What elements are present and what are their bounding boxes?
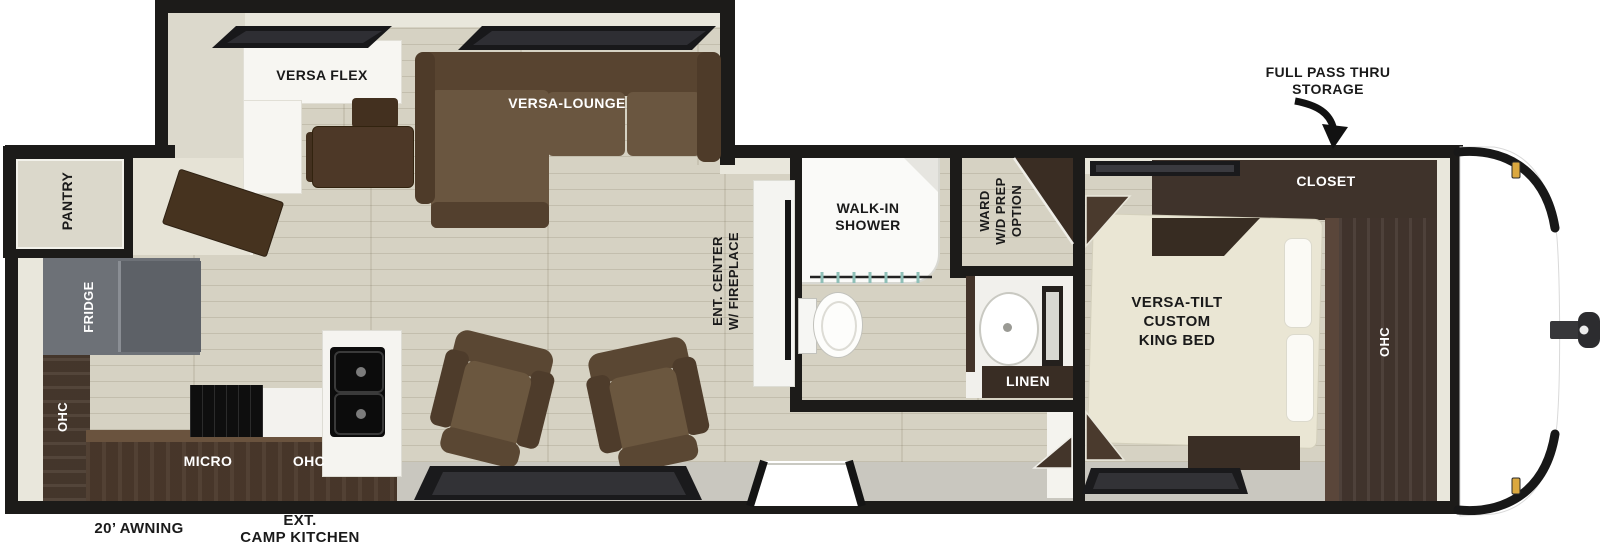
label-linen: LINEN — [983, 373, 1073, 390]
bathroom-sink-drain — [1003, 323, 1012, 332]
counter-segment — [263, 388, 322, 437]
label-versa-flex: VERSA FLEX — [252, 67, 392, 84]
label-fridge: FRIDGE — [81, 257, 101, 357]
bed-foot-bench — [1188, 436, 1300, 470]
dinette-table — [312, 126, 414, 188]
label-walk-in-shower: WALK-IN SHOWER — [788, 200, 948, 234]
label-pantry: PANTRY — [59, 136, 79, 266]
front-cap — [1458, 147, 1560, 516]
label-full-pass-thru-storage: FULL PASS THRU STORAGE — [1218, 64, 1438, 98]
dinette-bench — [352, 98, 398, 128]
closet-cabinet — [1152, 160, 1437, 220]
rv-floorplan: FULL PASS THRU STORAGE CLOSET VERSA-TILT… — [0, 0, 1600, 549]
pillow — [1286, 334, 1314, 422]
sink-basin — [334, 351, 384, 393]
sink-drain — [356, 409, 366, 419]
kitchen-sink — [330, 347, 385, 437]
sink-basin — [334, 393, 384, 435]
mirror-glass — [1046, 292, 1059, 360]
label-micro: MICRO — [163, 453, 253, 470]
versa-lounge-sofa — [415, 50, 722, 208]
storage-arrow-icon — [1295, 101, 1348, 149]
label-versa-lounge: VERSA-LOUNGE — [477, 95, 657, 112]
pillow — [1284, 238, 1312, 328]
label-ohc-bedroom: OHC — [1377, 312, 1397, 372]
marker-light — [1512, 162, 1520, 178]
marker-light — [1512, 478, 1520, 494]
sofa-arm — [697, 52, 721, 162]
versa-flex-counter-leg — [243, 100, 302, 194]
label-ward-wd-prep: WARD W/D PREP OPTION — [977, 161, 1025, 261]
slideout-wall-face-top — [168, 13, 720, 27]
label-king-bed: VERSA-TILT CUSTOM KING BED — [1077, 293, 1277, 350]
label-closet: CLOSET — [1266, 173, 1386, 190]
stove — [190, 385, 263, 437]
bedroom-door-opening — [1047, 412, 1073, 498]
vanity-edge — [966, 276, 975, 372]
slideout-wall-face-left — [168, 13, 245, 160]
label-ohc-left: OHC — [55, 387, 75, 447]
fridge-door — [118, 261, 201, 352]
label-ext-camp-kitchen: EXT. CAMP KITCHEN — [200, 512, 400, 546]
label-awning: 20’ AWNING — [59, 520, 219, 537]
toilet-seat — [821, 301, 857, 351]
cabinet-edge — [1325, 218, 1339, 501]
sofa-chaise-front — [431, 202, 549, 228]
label-ohc-kitchen: OHC — [274, 453, 344, 470]
hitch — [1550, 312, 1600, 348]
sink-drain — [356, 367, 366, 377]
label-ent-center: ENT. CENTER W/ FIREPLACE — [710, 221, 742, 341]
sofa-arm — [415, 52, 435, 204]
